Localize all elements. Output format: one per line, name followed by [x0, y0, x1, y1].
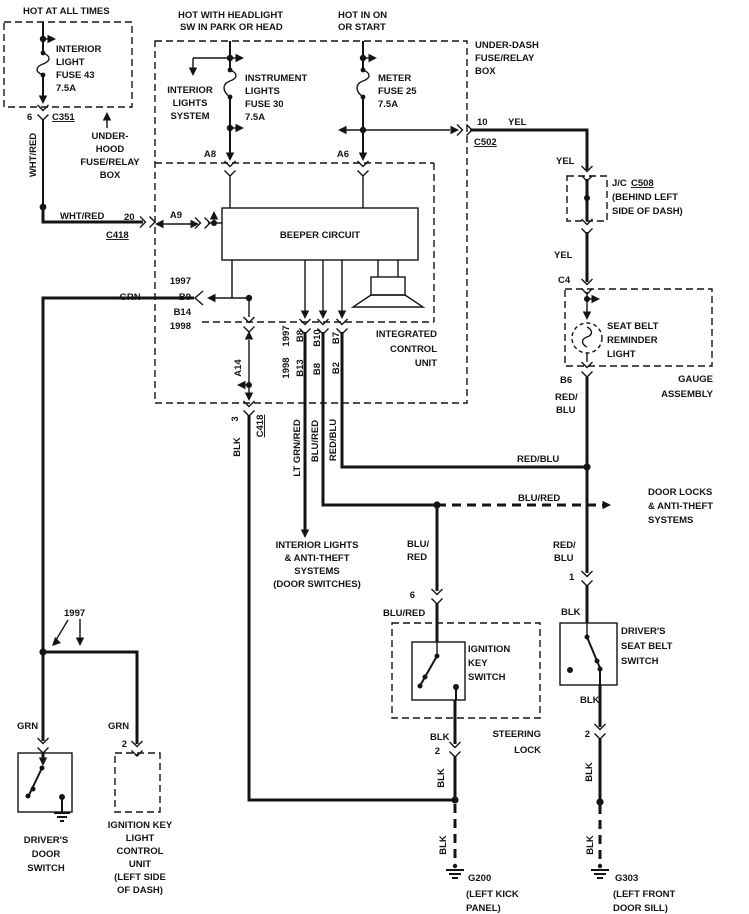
label-g303-loc-1: (LEFT FRONT [613, 889, 675, 900]
wire-label-whtred-horizontal: WHT/RED [60, 211, 104, 222]
label-iklcu-2: LIGHT [126, 833, 155, 844]
wire-redblu [342, 332, 587, 623]
label-c4: C4 [558, 275, 571, 286]
label-g303-loc-2: DOOR SILL) [613, 903, 668, 914]
label-jc-ref: C508 [631, 178, 654, 189]
label-fuse25-3: 7.5A [378, 99, 398, 110]
label-g200: G200 [468, 873, 491, 884]
label-fuse25-2: FUSE 25 [378, 86, 417, 97]
label-iklcu-5: (LEFT SIDE [114, 872, 166, 883]
label-g200-loc-1: (LEFT KICK [466, 889, 519, 900]
speaker-symbol [353, 260, 423, 307]
label-iks-2: KEY [468, 658, 488, 669]
label-a8: A8 [204, 149, 216, 160]
label-icu-2: CONTROL [390, 344, 437, 355]
wire-label-blured-l1: BLU/ [407, 539, 430, 550]
label-sbr-3: LIGHT [607, 349, 636, 360]
label-dsbs-2: SEAT BELT [621, 641, 673, 652]
wire-label-ltgrnred: LT GRN/RED [292, 419, 303, 476]
label-1997-junction: 1997 [64, 608, 85, 619]
label-jc: J/C [612, 178, 627, 189]
label-hot-in-on-1: HOT IN ON [338, 10, 387, 21]
wire-label-redblu-s2: BLU [554, 553, 574, 564]
ignition-key-switch-box [412, 642, 465, 700]
label-underhood-3: FUSE/RELAY [80, 157, 140, 168]
wire-grn [43, 298, 194, 758]
label-pinrow-1997: 1997 [281, 325, 292, 346]
wire-label-yel-2: YEL [556, 156, 575, 167]
label-dlat-1: DOOR LOCKS [648, 487, 712, 498]
label-underdash-2: FUSE/RELAY [475, 53, 535, 64]
label-pin-1: 1 [569, 572, 575, 583]
wire-label-whtred-vertical: WHT/RED [28, 133, 39, 177]
label-b14: B14 [174, 307, 192, 318]
label-interior-lights-system-1: INTERIOR [167, 85, 213, 96]
wire-label-grn-right: GRN [108, 721, 129, 732]
wire-blk [249, 415, 600, 864]
label-c418-top-pin: 20 [124, 212, 135, 223]
wire-label-blk-sb-2: BLK [580, 695, 600, 706]
wire-label-yel-3: YEL [554, 250, 573, 261]
ground-g200-symbol [446, 864, 464, 878]
wire-label-blured-icu: BLU/RED [310, 420, 321, 462]
label-sbr-2: REMINDER [607, 335, 658, 346]
wire-label-grn-h: GRN [119, 292, 140, 303]
label-iks-3: SWITCH [468, 672, 506, 683]
label-icu-1: INTEGRATED [376, 329, 437, 340]
label-a6: A6 [337, 149, 349, 160]
fuse-43-symbol [37, 53, 49, 75]
label-pin-2-ign: 2 [435, 746, 440, 757]
ground-g303-symbol [591, 864, 609, 878]
wire-label-blured-l2: RED [407, 552, 427, 563]
wire-label-redblu-icu: RED/BLU [328, 419, 339, 461]
label-interior-lights-system-3: SYSTEM [170, 111, 209, 122]
wire-label-blk-g303: BLK [585, 835, 596, 855]
label-pin-b8-97: B8 [295, 330, 306, 342]
label-pin-b2-98: B2 [331, 362, 342, 374]
label-pin-b7-97: B7 [331, 332, 342, 344]
ignition-key-light-control-unit-box [115, 753, 160, 812]
connector-b9 [195, 291, 203, 305]
fuse-25-symbol [357, 70, 369, 97]
wire-label-blk-ign-2: BLK [436, 768, 447, 788]
wire-label-redblu-g2: BLU [556, 405, 576, 416]
label-c351: C351 [52, 112, 75, 123]
drivers-seat-belt-switch-symbol [567, 623, 603, 685]
label-fuse43-3: FUSE 43 [56, 70, 95, 81]
label-jc-loc-2: SIDE OF DASH) [612, 206, 683, 217]
label-steering-1: STEERING [492, 729, 541, 740]
label-pin-2-iklcu: 2 [122, 739, 127, 750]
wire-label-blured-sw: BLU/RED [383, 608, 425, 619]
label-b9: B9 [179, 292, 191, 303]
label-gauge-1: GAUGE [678, 374, 713, 385]
label-a14: A14 [233, 359, 244, 377]
label-iks-1: IGNITION [468, 644, 510, 655]
label-underhood-2: HOOD [96, 144, 125, 155]
label-g303: G303 [615, 873, 638, 884]
label-fuse30-4: 7.5A [245, 112, 265, 123]
label-pin-6: 6 [410, 590, 415, 601]
label-g200-loc-2: PANEL) [466, 903, 501, 914]
wire-label-blured-dash: BLU/RED [518, 493, 560, 504]
label-c502: C502 [474, 137, 497, 148]
label-hot-with-headlight-1: HOT WITH HEADLIGHT [178, 10, 283, 21]
label-pinrow-1998: 1998 [281, 357, 292, 378]
label-dds-2: DOOR [32, 849, 61, 860]
wire-label-grn-left: GRN [17, 721, 38, 732]
label-steering-2: LOCK [514, 745, 541, 756]
label-c351-pin: 6 [27, 112, 32, 123]
wire-label-yel-1: YEL [508, 117, 527, 128]
wire-label-blk-g200: BLK [438, 835, 449, 855]
label-underhood-1: UNDER- [92, 131, 129, 142]
drivers-seat-belt-switch-box [560, 623, 617, 685]
label-dsbs-3: SWITCH [621, 656, 659, 667]
label-ilat-4: (DOOR SWITCHES) [273, 579, 361, 590]
label-iklcu-1: IGNITION KEY [108, 820, 173, 831]
wire-label-redblu-s1: RED/ [553, 540, 576, 551]
label-fuse30-3: FUSE 30 [245, 99, 284, 110]
label-dlat-3: SYSTEMS [648, 515, 693, 526]
label-sbr-1: SEAT BELT [607, 321, 659, 332]
label-fuse30-2: LIGHTS [245, 86, 280, 97]
label-c418-top: C418 [106, 230, 129, 241]
label-ilat-3: SYSTEMS [294, 566, 339, 577]
label-iklcu-3: CONTROL [117, 846, 164, 857]
label-hot-in-on-2: OR START [338, 22, 386, 33]
wire-yel [470, 130, 594, 362]
seat-belt-reminder-wiring-diagram: HOT AT ALL TIMES HOT WITH HEADLIGHT SW I… [0, 0, 749, 914]
label-pin-b8-98: B8 [312, 363, 323, 375]
label-hot-with-headlight-2: SW IN PARK OR HEAD [180, 22, 283, 33]
ignition-key-switch-symbol [418, 642, 460, 700]
label-pin-2-sb: 2 [585, 729, 590, 740]
label-underdash-1: UNDER-DASH [475, 40, 539, 51]
label-fuse43-1: INTERIOR [56, 44, 102, 55]
label-b14-year: 1998 [170, 321, 191, 332]
label-a9: A9 [170, 210, 182, 221]
label-gauge-2: ASSEMBLY [661, 389, 714, 400]
label-b6: B6 [560, 375, 572, 386]
label-ilat-2: & ANTI-THEFT [284, 553, 349, 564]
label-jc-loc-1: (BEHIND LEFT [612, 192, 678, 203]
label-interior-lights-system-2: LIGHTS [173, 98, 208, 109]
steering-lock-box [392, 623, 540, 718]
text-labels: HOT AT ALL TIMES HOT WITH HEADLIGHT SW I… [17, 6, 714, 914]
wire-label-redblu-h: RED/BLU [517, 454, 559, 465]
label-beeper-circuit: BEEPER CIRCUIT [280, 230, 360, 241]
label-b9-year: 1997 [170, 276, 191, 287]
label-c418-bot: C418 [255, 415, 266, 438]
label-underhood-4: BOX [100, 170, 121, 181]
label-dlat-2: & ANTI-THEFT [648, 501, 713, 512]
label-dds-3: SWITCH [27, 863, 65, 874]
wire-label-blk-sb-3: BLK [584, 762, 595, 782]
drivers-door-switch-symbol [26, 753, 71, 821]
wire-label-blk-ign-1: BLK [430, 732, 450, 743]
label-fuse43-4: 7.5A [56, 83, 76, 94]
label-iklcu-6: OF DASH) [117, 885, 163, 896]
label-underdash-3: BOX [475, 66, 496, 77]
label-fuse30-1: INSTRUMENT [245, 73, 307, 84]
label-fuse43-2: LIGHT [56, 57, 85, 68]
fuse-30-symbol [224, 70, 236, 97]
label-c418-bot-pin: 3 [230, 416, 241, 421]
label-dsbs-1: DRIVER'S [621, 626, 666, 637]
label-dds-1: DRIVER'S [24, 835, 69, 846]
wire-label-redblu-g1: RED/ [555, 392, 578, 403]
label-pin-b10-97: B10 [312, 329, 323, 346]
label-ilat-1: INTERIOR LIGHTS [276, 540, 359, 551]
wiring-diagram-page: HOT AT ALL TIMES HOT WITH HEADLIGHT SW I… [0, 0, 749, 914]
label-c502-pin: 10 [477, 117, 488, 128]
label-hot-at-all-times: HOT AT ALL TIMES [23, 6, 110, 17]
label-fuse25-1: METER [378, 73, 411, 84]
label-icu-3: UNIT [415, 358, 437, 369]
wire-label-blk-icu: BLK [232, 437, 243, 457]
wire-label-blk-sb-1: BLK [561, 607, 581, 618]
label-iklcu-4: UNIT [129, 859, 151, 870]
seat-belt-reminder-bulb [572, 323, 602, 353]
label-pin-b13-98: B13 [295, 359, 306, 376]
